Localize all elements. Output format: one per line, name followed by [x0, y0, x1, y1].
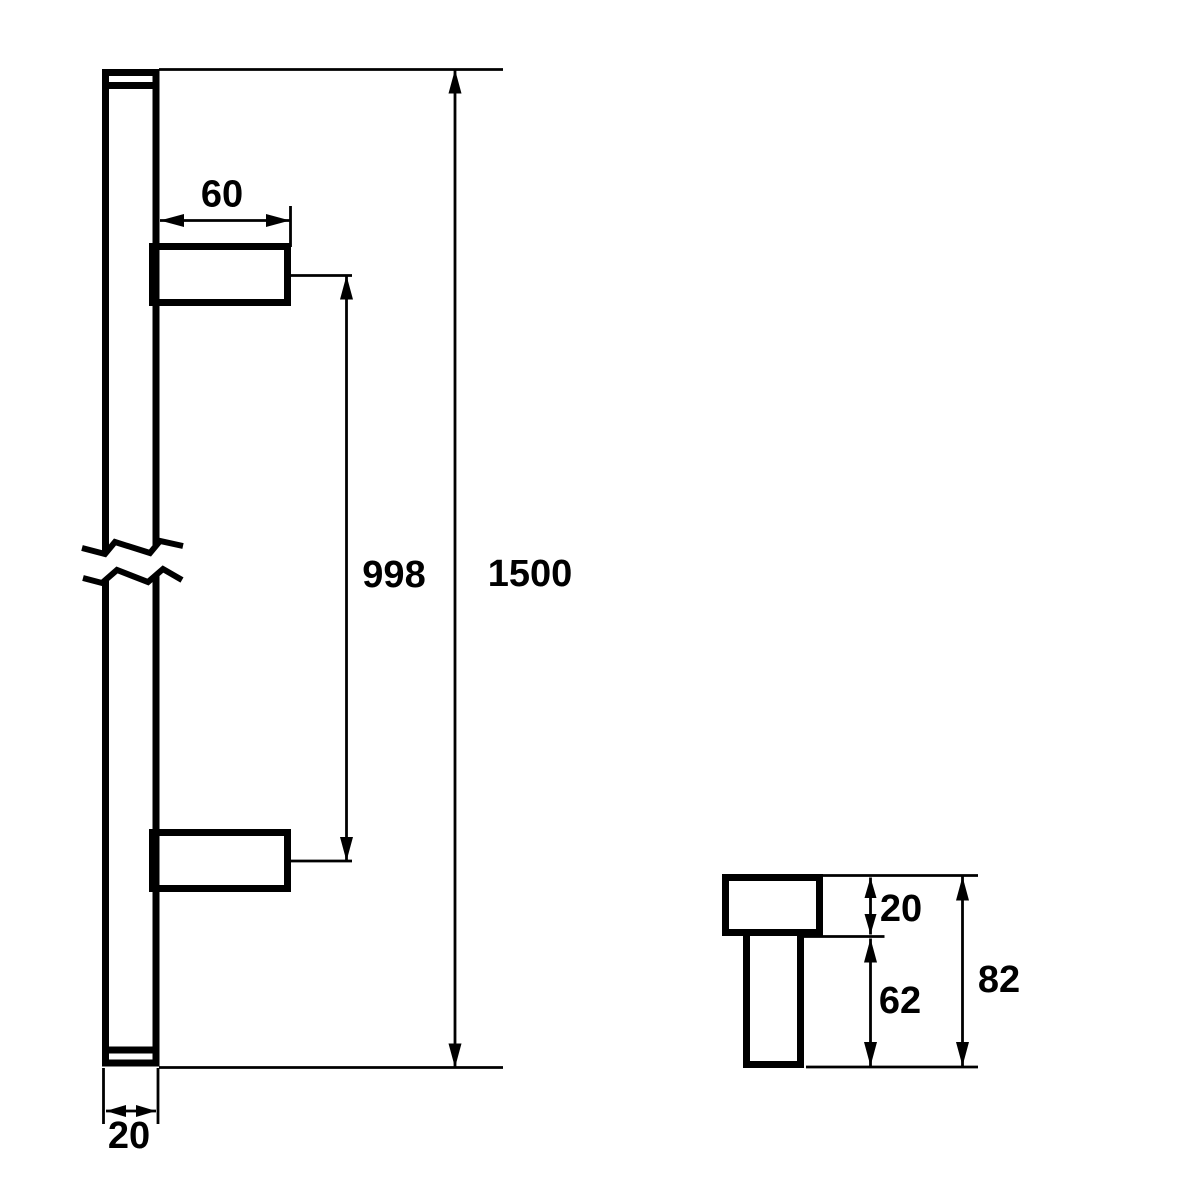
technical-drawing: 60 998 1500 20	[0, 0, 1181, 1181]
handle-bar-sides	[106, 69, 157, 1066]
handle-bar-top-cap	[102, 73, 160, 86]
standoff-detail-view: 20 62 82	[726, 876, 1021, 1068]
arrowhead-up	[449, 70, 462, 94]
top-standoff	[153, 247, 288, 303]
detail-bar-section	[726, 878, 820, 933]
dim-d62-label: 62	[879, 980, 921, 1022]
arrowhead-down	[956, 1042, 969, 1066]
arrowhead-right	[266, 214, 290, 227]
pull-handle-side-view: 60 998 1500 20	[82, 69, 572, 1157]
arrowhead-down	[340, 837, 353, 861]
dim-detail-standoff-projection: 62	[864, 939, 921, 1067]
break-line-lower	[83, 569, 182, 583]
arrowhead-left	[160, 214, 184, 227]
arrowhead-up	[340, 276, 353, 300]
dim-fixing-centres: 998	[291, 276, 426, 862]
arrowhead-up	[956, 877, 969, 901]
dim-bar-width: 20	[104, 1068, 159, 1157]
break-line-upper	[82, 541, 183, 554]
arrowhead-up	[864, 939, 877, 963]
handle-bar-bottom-cap	[102, 1050, 160, 1063]
dim-d20-label: 20	[880, 888, 922, 930]
dim-detail-overall-projection: 82	[956, 877, 1020, 1067]
arrowhead-down	[865, 914, 877, 935]
bottom-standoff	[153, 833, 288, 889]
dim-standoff-length: 60	[160, 174, 291, 248]
dim-60-label: 60	[201, 174, 243, 216]
dim-1500-label: 1500	[488, 553, 573, 595]
dim-998-label: 998	[362, 554, 425, 596]
detail-standoff-stem	[747, 935, 801, 1065]
dim-detail-bar-depth: 20	[865, 878, 923, 935]
arrowhead-down	[864, 1042, 877, 1066]
dim-20-label: 20	[108, 1115, 150, 1157]
arrowhead-up	[865, 878, 877, 899]
drawing-svg: 60 998 1500 20	[0, 0, 1181, 1181]
dim-d82-label: 82	[978, 959, 1020, 1001]
arrowhead-down	[449, 1044, 462, 1068]
